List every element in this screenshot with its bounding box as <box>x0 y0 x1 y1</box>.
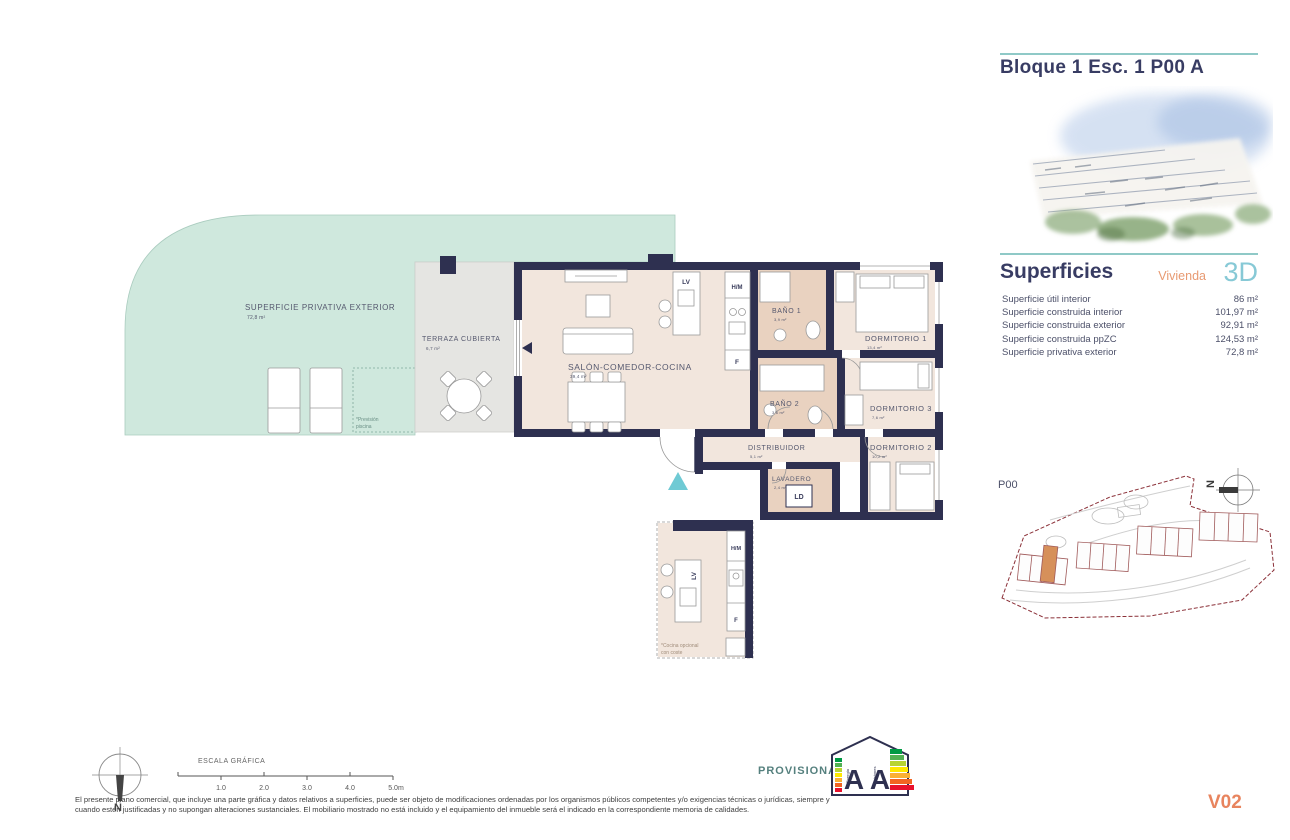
inset-f-label: F <box>734 618 738 624</box>
energy-right-caption: Emisiones <box>872 767 877 785</box>
svg-text:10,2 m²: 10,2 m² <box>872 454 887 459</box>
room-label: LAVADERO <box>772 476 811 483</box>
floor-plan: *Previsión piscina <box>120 210 970 680</box>
scale-bar: ESCALA GRÁFICA 1.0 2.0 3.0 4.0 5.0m <box>170 752 420 794</box>
superficies-table: Superficie útil interior86 m² Superficie… <box>1002 293 1258 359</box>
svg-text:7,6 m²: 7,6 m² <box>872 415 885 420</box>
svg-text:39,4 m²: 39,4 m² <box>570 374 587 379</box>
svg-text:5,1 m²: 5,1 m² <box>750 454 763 459</box>
room-label: BAÑO 1 <box>772 306 801 315</box>
svg-text:3,9 m²: 3,9 m² <box>774 317 787 322</box>
pool-note: *Previsión <box>356 417 379 423</box>
plan-sheet: Bloque 1 Esc. 1 P00 A Supe <box>0 0 1290 840</box>
entrance-arrow-icon <box>668 472 688 490</box>
svg-text:13,4 m²: 13,4 m² <box>867 345 882 350</box>
site-roads <box>1010 486 1250 603</box>
siteplan-compass-icon: N <box>1205 468 1260 512</box>
svg-text:4.0: 4.0 <box>345 785 355 792</box>
svg-text:3.0: 3.0 <box>302 785 312 792</box>
hm-label: H/M <box>732 285 743 291</box>
table-row: Superficie privativa exterior72,8 m² <box>1002 346 1258 359</box>
svg-text:5.0m: 5.0m <box>388 785 404 792</box>
optional-kitchen-note: *Cocina opcional <box>661 643 699 649</box>
energy-bars-right <box>890 749 914 790</box>
building-illustration <box>1015 86 1273 246</box>
room-label: DORMITORIO 3 <box>870 404 932 413</box>
superficies-title: Superficies <box>1000 260 1113 284</box>
optional-kitchen-inset: H/M F LV *Cocina opcional con coste <box>657 520 753 658</box>
inset-hm-label: H/M <box>731 546 742 552</box>
f-label: F <box>735 359 739 366</box>
superficies-header: Superficies Vivienda 3D <box>1000 260 1258 290</box>
lv-label: LV <box>682 279 690 286</box>
room-label: DORMITORIO 2 <box>870 443 932 452</box>
legal-disclaimer: El presente plano comercial, que incluye… <box>75 795 970 815</box>
svg-text:piscina: piscina <box>356 424 372 430</box>
energy-rating-icon: Energía A A Emisiones <box>828 733 914 801</box>
room-label: SALÓN-COMEDOR-COCINA <box>568 362 692 372</box>
room-label: TERRAZA CUBIERTA <box>422 336 501 343</box>
header-rule <box>1000 53 1258 55</box>
ld-label: LD <box>794 494 803 501</box>
table-row: Superficie construida exterior92,91 m² <box>1002 319 1258 332</box>
svg-text:3,6 m²: 3,6 m² <box>772 410 785 415</box>
scale-title: ESCALA GRÁFICA <box>198 756 265 765</box>
superficies-rule <box>1000 253 1258 255</box>
room-label: BAÑO 2 <box>770 399 799 408</box>
siteplan-floor-label: P00 <box>998 479 1018 491</box>
table-row: Superficie construida interior101,97 m² <box>1002 306 1258 319</box>
version-label: V02 <box>1208 792 1242 814</box>
siteplan-north-label: N <box>1205 480 1217 488</box>
svg-text:2,4 m²: 2,4 m² <box>774 485 787 490</box>
room-label: DISTRIBUIDOR <box>748 445 805 452</box>
inset-lv-label: LV <box>691 571 698 579</box>
svg-text:6,7 m²: 6,7 m² <box>426 346 440 351</box>
table-row: Superficie construida ppZC124,53 m² <box>1002 333 1258 346</box>
page-title: Bloque 1 Esc. 1 P00 A <box>1000 57 1204 79</box>
vivienda-label: Vivienda <box>1158 269 1206 283</box>
svg-text:72,8 m²: 72,8 m² <box>247 315 265 321</box>
table-row: Superficie útil interior86 m² <box>1002 293 1258 306</box>
site-plan: P00 N <box>990 450 1290 635</box>
svg-text:2.0: 2.0 <box>259 785 269 792</box>
svg-text:1.0: 1.0 <box>216 785 226 792</box>
svg-text:con coste: con coste <box>661 650 683 656</box>
energy-letter: A <box>844 764 864 795</box>
energy-bars-left <box>835 758 842 792</box>
room-label: SUPERFICIE PRIVATIVA EXTERIOR <box>245 303 395 312</box>
room-label: DORMITORIO 1 <box>865 334 927 343</box>
vivienda-type: 3D <box>1223 257 1258 288</box>
